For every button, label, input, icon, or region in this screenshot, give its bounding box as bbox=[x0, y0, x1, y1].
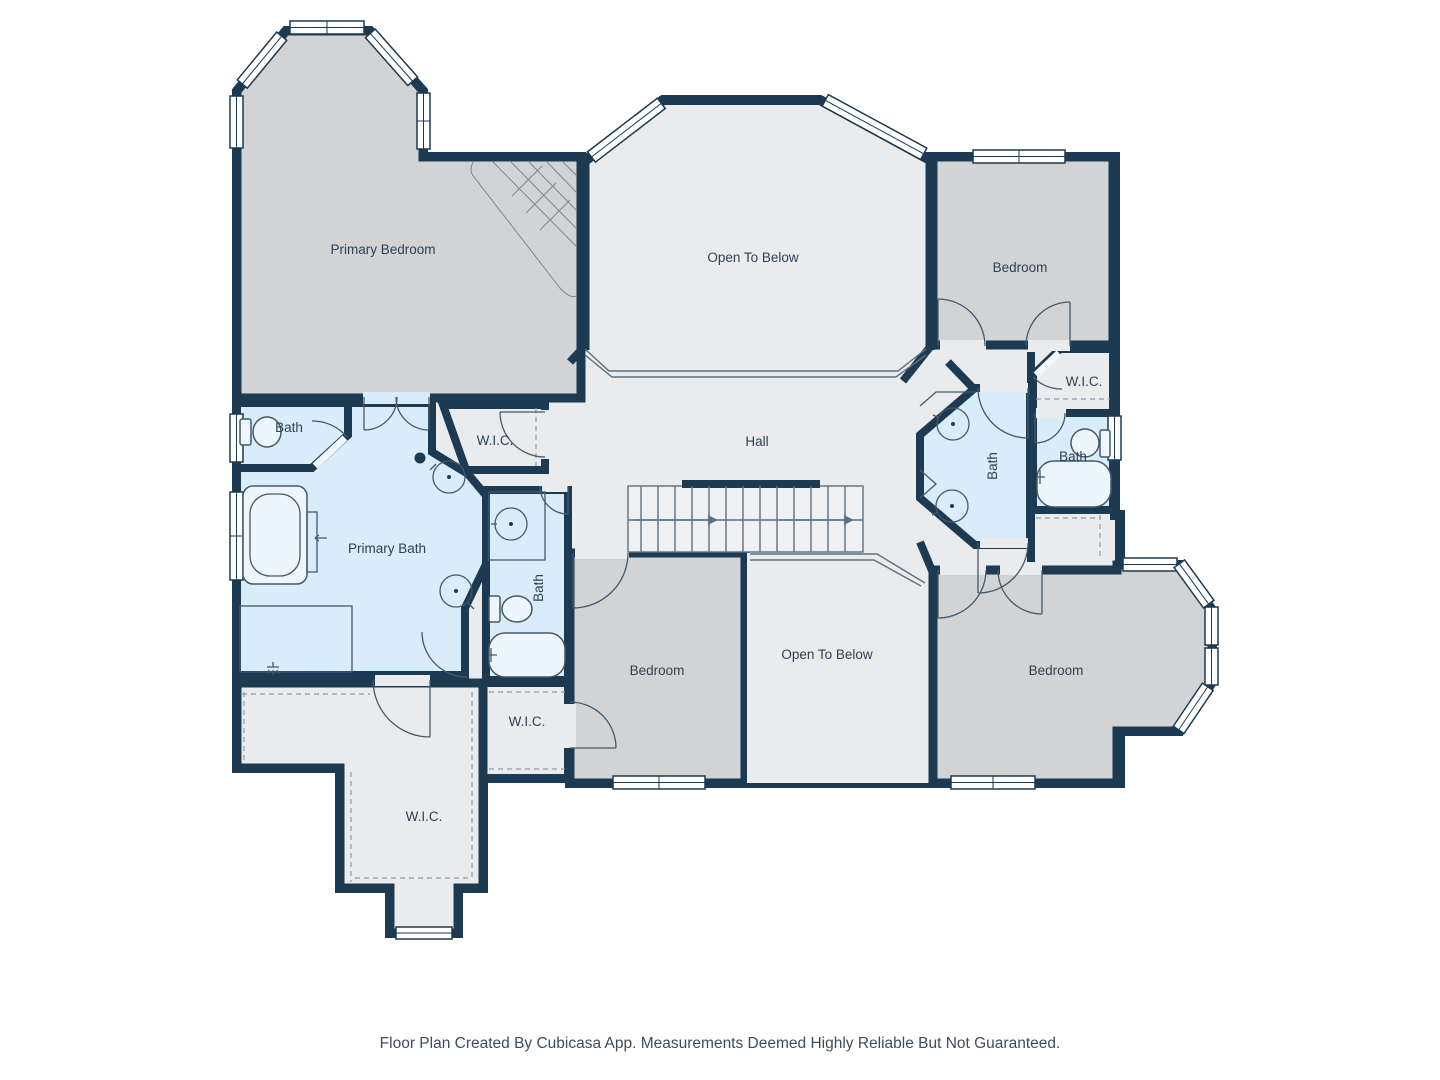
window-bedroom-bc-bottom bbox=[613, 776, 705, 789]
floor-plan-page: Primary Bedroom Open To Below Bedroom W.… bbox=[0, 0, 1440, 1080]
toilet-bath-center bbox=[489, 596, 532, 622]
label-bedroom-top-right: Bedroom bbox=[993, 260, 1048, 275]
window-bedroom-br-bottom bbox=[951, 776, 1035, 789]
room-open-to-below-top bbox=[585, 100, 930, 375]
room-open-to-below-bottom bbox=[747, 553, 930, 783]
label-bath-top-left: Bath bbox=[275, 420, 303, 435]
room-wic-bottom-left bbox=[237, 683, 483, 933]
door-gap-bedroom-tr-a bbox=[940, 340, 986, 351]
door-gap-bedroom-bc-top bbox=[575, 548, 629, 559]
tub-bath-right bbox=[1037, 461, 1111, 507]
label-open-to-below-bottom: Open To Below bbox=[781, 647, 873, 662]
room-primary-bedroom bbox=[237, 31, 581, 398]
label-wic-bottom-left: W.I.C. bbox=[406, 809, 443, 824]
label-wic-center: W.I.C. bbox=[509, 714, 546, 729]
floor-plan-canvas: Primary Bedroom Open To Below Bedroom W.… bbox=[0, 0, 1440, 1080]
label-primary-bedroom: Primary Bedroom bbox=[330, 242, 435, 257]
label-bedroom-bottom-right: Bedroom bbox=[1029, 663, 1084, 678]
window-primary-bedroom-left bbox=[230, 96, 243, 148]
door-gap-bedroom-bc-west bbox=[564, 704, 576, 748]
label-hall: Hall bbox=[745, 434, 768, 449]
door-gap-bath-right bbox=[1036, 408, 1066, 418]
door-gap-jackjill-top bbox=[980, 383, 1028, 393]
door-gap-bedroom-tr-b bbox=[1028, 340, 1070, 351]
window-bay2-right-upper bbox=[1205, 607, 1218, 645]
label-primary-bath: Primary Bath bbox=[348, 541, 426, 556]
window-bay1-east bbox=[417, 93, 430, 149]
door-gap-bath-center bbox=[542, 482, 568, 492]
door-gap-wic-middle bbox=[539, 410, 551, 459]
label-bath-right: Bath bbox=[1059, 449, 1087, 464]
door-gap-jackjill-bottom bbox=[980, 538, 1028, 548]
room-bedroom-top-right bbox=[933, 157, 1113, 345]
label-bath-center: Bath bbox=[531, 574, 546, 602]
window-bay1-top bbox=[290, 21, 364, 34]
staircase-main bbox=[628, 480, 863, 552]
label-wic-top-right: W.I.C. bbox=[1066, 374, 1103, 389]
label-open-to-below-top: Open To Below bbox=[707, 250, 799, 265]
door-pivot-dot bbox=[415, 453, 426, 464]
label-bedroom-bottom-center: Bedroom bbox=[630, 663, 685, 678]
label-bath-jack-and-jill: Bath bbox=[985, 452, 1000, 480]
window-bay2-top bbox=[1123, 558, 1177, 571]
room-wic-center bbox=[483, 683, 568, 778]
window-bay2-right-lower bbox=[1205, 648, 1218, 685]
door-gap-bedroom-br-b bbox=[1000, 565, 1042, 575]
door-gap-bedroom-br-a bbox=[940, 565, 986, 575]
window-bedroom-tr-top bbox=[973, 150, 1065, 163]
window-primary-bath-left bbox=[230, 492, 243, 580]
tub-bath-center bbox=[489, 633, 565, 677]
door-gap-wic-bottom-left bbox=[375, 675, 430, 686]
footer-disclaimer: Floor Plan Created By Cubicasa App. Meas… bbox=[380, 1035, 1061, 1052]
window-wic-bottom bbox=[396, 927, 452, 939]
label-wic-middle: W.I.C. bbox=[477, 433, 514, 448]
